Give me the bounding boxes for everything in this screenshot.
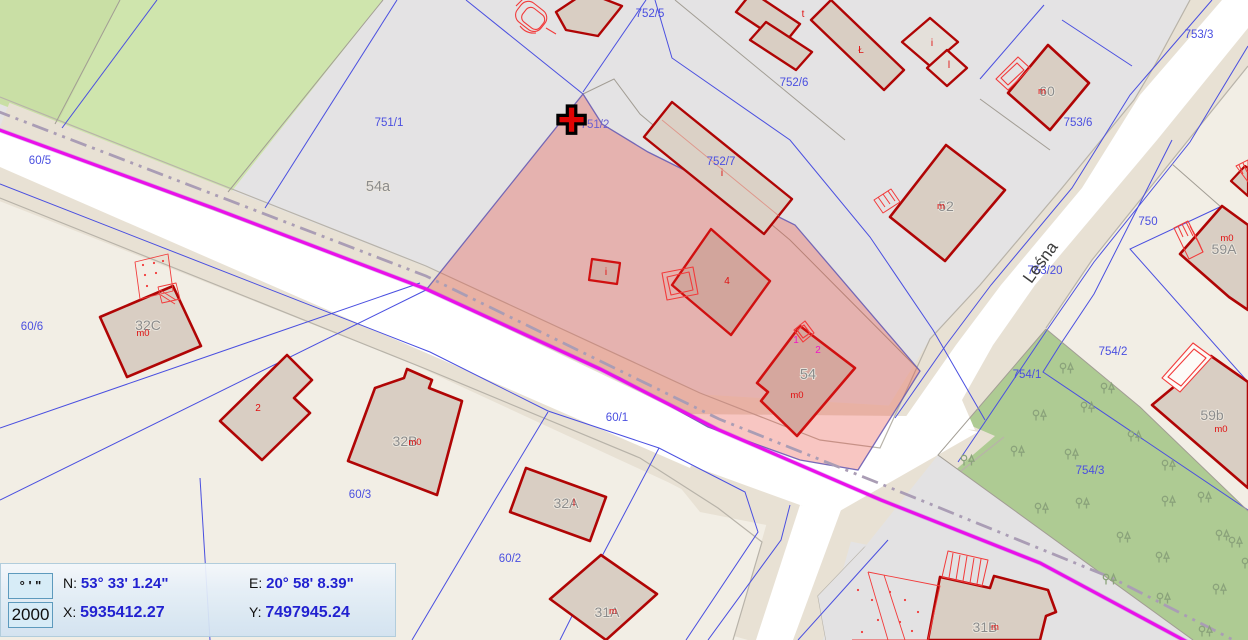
svg-text:753/6: 753/6: [1064, 117, 1093, 129]
svg-text:m0: m0: [1220, 233, 1233, 244]
svg-text:m: m: [991, 622, 999, 633]
svg-text:60/1: 60/1: [606, 412, 628, 424]
svg-text:754/2: 754/2: [1099, 346, 1128, 358]
svg-text:m: m: [937, 201, 945, 212]
svg-text:2: 2: [255, 403, 261, 414]
svg-text:l: l: [948, 60, 950, 71]
svg-text:i: i: [721, 168, 723, 179]
svg-text:60/6: 60/6: [21, 321, 43, 333]
svg-text:m: m: [1038, 86, 1046, 97]
svg-text:m0: m0: [1214, 424, 1227, 435]
svg-text:1: 1: [793, 335, 799, 346]
svg-text:2: 2: [815, 345, 821, 356]
svg-text:m0: m0: [408, 437, 421, 448]
svg-text:60/2: 60/2: [499, 553, 521, 565]
svg-text:m0: m0: [790, 390, 803, 401]
svg-text:m: m: [609, 606, 617, 617]
svg-text:Ł: Ł: [858, 45, 864, 56]
svg-text:60/3: 60/3: [349, 489, 371, 501]
svg-text:t: t: [802, 9, 805, 20]
svg-text:752/7: 752/7: [707, 156, 736, 168]
svg-text:60/5: 60/5: [29, 155, 51, 167]
svg-text:m0: m0: [136, 328, 149, 339]
svg-text:750: 750: [1138, 216, 1157, 228]
svg-text:751/1: 751/1: [375, 117, 404, 129]
svg-text:32A: 32A: [554, 495, 580, 511]
svg-text:54: 54: [800, 367, 816, 383]
svg-text:752/6: 752/6: [780, 77, 809, 89]
svg-text:754/1: 754/1: [1013, 369, 1042, 381]
svg-text:754/3: 754/3: [1076, 465, 1105, 477]
svg-text:i: i: [605, 267, 607, 278]
svg-text:59b: 59b: [1200, 407, 1224, 423]
svg-text:l: l: [573, 498, 575, 509]
svg-text:i: i: [931, 38, 933, 49]
svg-text:752/5: 752/5: [636, 8, 665, 20]
svg-text:54a: 54a: [366, 179, 391, 195]
svg-text:4: 4: [724, 276, 730, 287]
svg-text:753/3: 753/3: [1185, 29, 1214, 41]
